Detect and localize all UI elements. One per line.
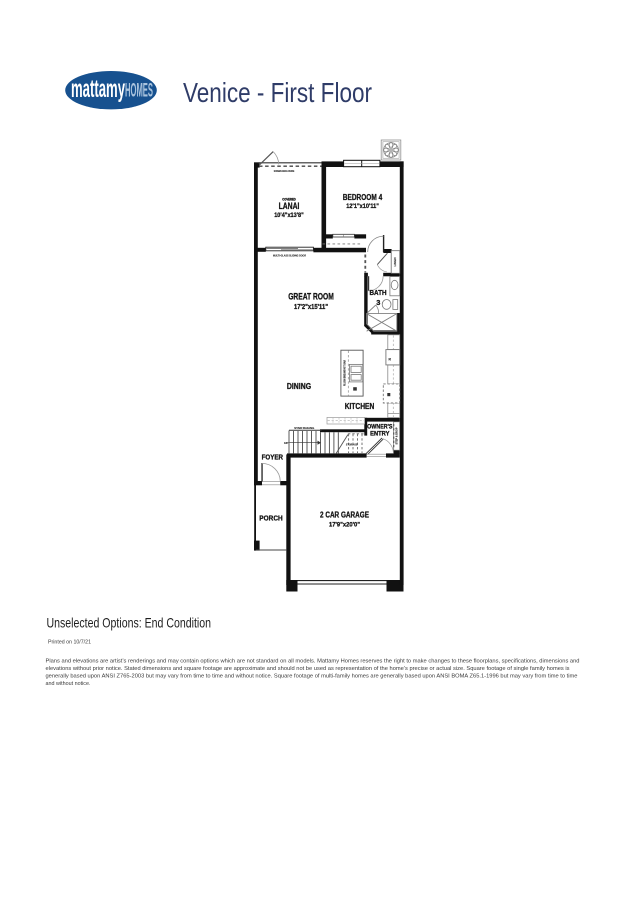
svg-text:BATH: BATH (370, 288, 387, 297)
svg-text:Unselected Options: End Condit: Unselected Options: End Condition (47, 614, 212, 630)
svg-text:SCREEN ENCLOSURE: SCREEN ENCLOSURE (274, 169, 295, 173)
svg-text:GREAT ROOM: GREAT ROOM (288, 292, 334, 302)
svg-text:ENTRY: ENTRY (370, 432, 389, 438)
svg-text:DINING: DINING (287, 382, 311, 391)
svg-text:STEP & DROP: STEP & DROP (395, 427, 399, 444)
svg-text:UP: UP (284, 441, 288, 445)
svg-text:3: 3 (376, 298, 380, 307)
svg-text:17'9"x20'0": 17'9"x20'0" (329, 521, 360, 528)
svg-text:Venice - First Floor: Venice - First Floor (183, 77, 372, 108)
svg-text:FLUSH BREAKFAST BAR: FLUSH BREAKFAST BAR (343, 360, 346, 386)
svg-text:MULTI-GLASS SLIDING DOOR: MULTI-GLASS SLIDING DOOR (273, 253, 307, 257)
svg-text:HOMES: HOMES (125, 80, 153, 102)
svg-text:LINEN: LINEN (393, 257, 397, 266)
svg-text:and without notice.: and without notice. (46, 681, 91, 687)
svg-text:generally based upon ANSI Z765: generally based upon ANSI Z765-2003 but … (46, 674, 578, 680)
svg-text:10'4"x13'8": 10'4"x13'8" (274, 212, 304, 219)
svg-text:OWNER'S: OWNER'S (367, 424, 392, 430)
svg-text:Plans and elevations are artis: Plans and elevations are artist’s render… (46, 659, 580, 665)
svg-text:BEDROOM 4: BEDROOM 4 (343, 192, 383, 202)
svg-text:STORAGE: STORAGE (346, 442, 358, 446)
svg-text:12'1"x10'11": 12'1"x10'11" (346, 203, 379, 210)
svg-text:2 CAR GARAGE: 2 CAR GARAGE (320, 510, 369, 519)
svg-text:STAIR RAILING: STAIR RAILING (294, 426, 315, 430)
svg-text:LANAI: LANAI (279, 201, 300, 211)
svg-text:KITCHEN: KITCHEN (345, 402, 375, 411)
svg-text:FOYER: FOYER (262, 453, 284, 462)
svg-text:Printed on 10/7/21: Printed on 10/7/21 (48, 640, 91, 646)
svg-text:mattamy: mattamy (71, 75, 125, 103)
svg-text:elevations without prior notic: elevations without prior notice. Stated … (46, 666, 570, 672)
svg-text:PORCH: PORCH (259, 514, 282, 523)
svg-text:17'2"x15'11": 17'2"x15'11" (294, 304, 328, 311)
